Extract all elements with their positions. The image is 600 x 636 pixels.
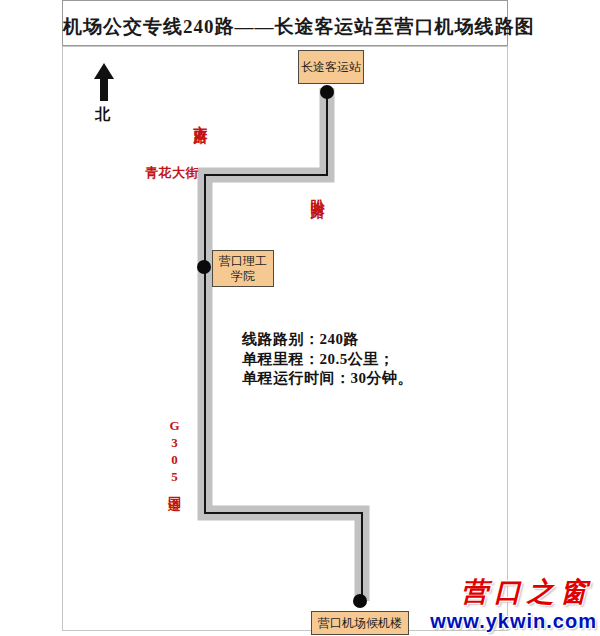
- site-watermark: 营口之窗 www.ykwin.com: [430, 574, 597, 633]
- north-label: 北: [95, 105, 110, 124]
- route-map-canvas: 机场公交专线240路——长途客运站至营口机场线路图 北 市府路 青花大街 盼盼路…: [0, 0, 600, 636]
- route-info-block: 线路路别：240路 单程里程：20.5公里； 单程运行时间：30分钟。: [242, 330, 413, 389]
- route-info-duration: 单程运行时间：30分钟。: [242, 369, 413, 389]
- station-label: 营口机场候机楼: [312, 616, 408, 631]
- site-name-logo: 营口之窗: [430, 574, 597, 610]
- north-arrow-icon: [94, 63, 114, 101]
- station-label-line2: 学院: [213, 269, 273, 284]
- route-info-line-number: 线路路别：240路: [242, 330, 413, 350]
- station-label: 长途客运站: [299, 60, 363, 75]
- road-label-panpan-road: 盼盼路: [310, 188, 324, 197]
- stop-dot-end: [353, 594, 367, 608]
- station-box-institute: 营口理工 学院: [212, 250, 274, 287]
- road-label-qinghua-street: 青花大街: [145, 164, 199, 182]
- stop-dot-start: [320, 85, 334, 99]
- site-url: www.ykwin.com: [430, 610, 597, 633]
- road-label-shifu-road: 市府路: [193, 113, 207, 122]
- station-box-bus-terminal: 长途客运站: [298, 50, 364, 84]
- station-box-airport-terminal: 营口机场候机楼: [311, 611, 409, 635]
- route-svg: [0, 0, 600, 636]
- road-label-g305-highway: G305国道: [167, 418, 181, 490]
- stop-dot-middle: [197, 260, 211, 274]
- station-label-line1: 营口理工: [213, 254, 273, 269]
- route-info-distance: 单程里程：20.5公里；: [242, 350, 413, 370]
